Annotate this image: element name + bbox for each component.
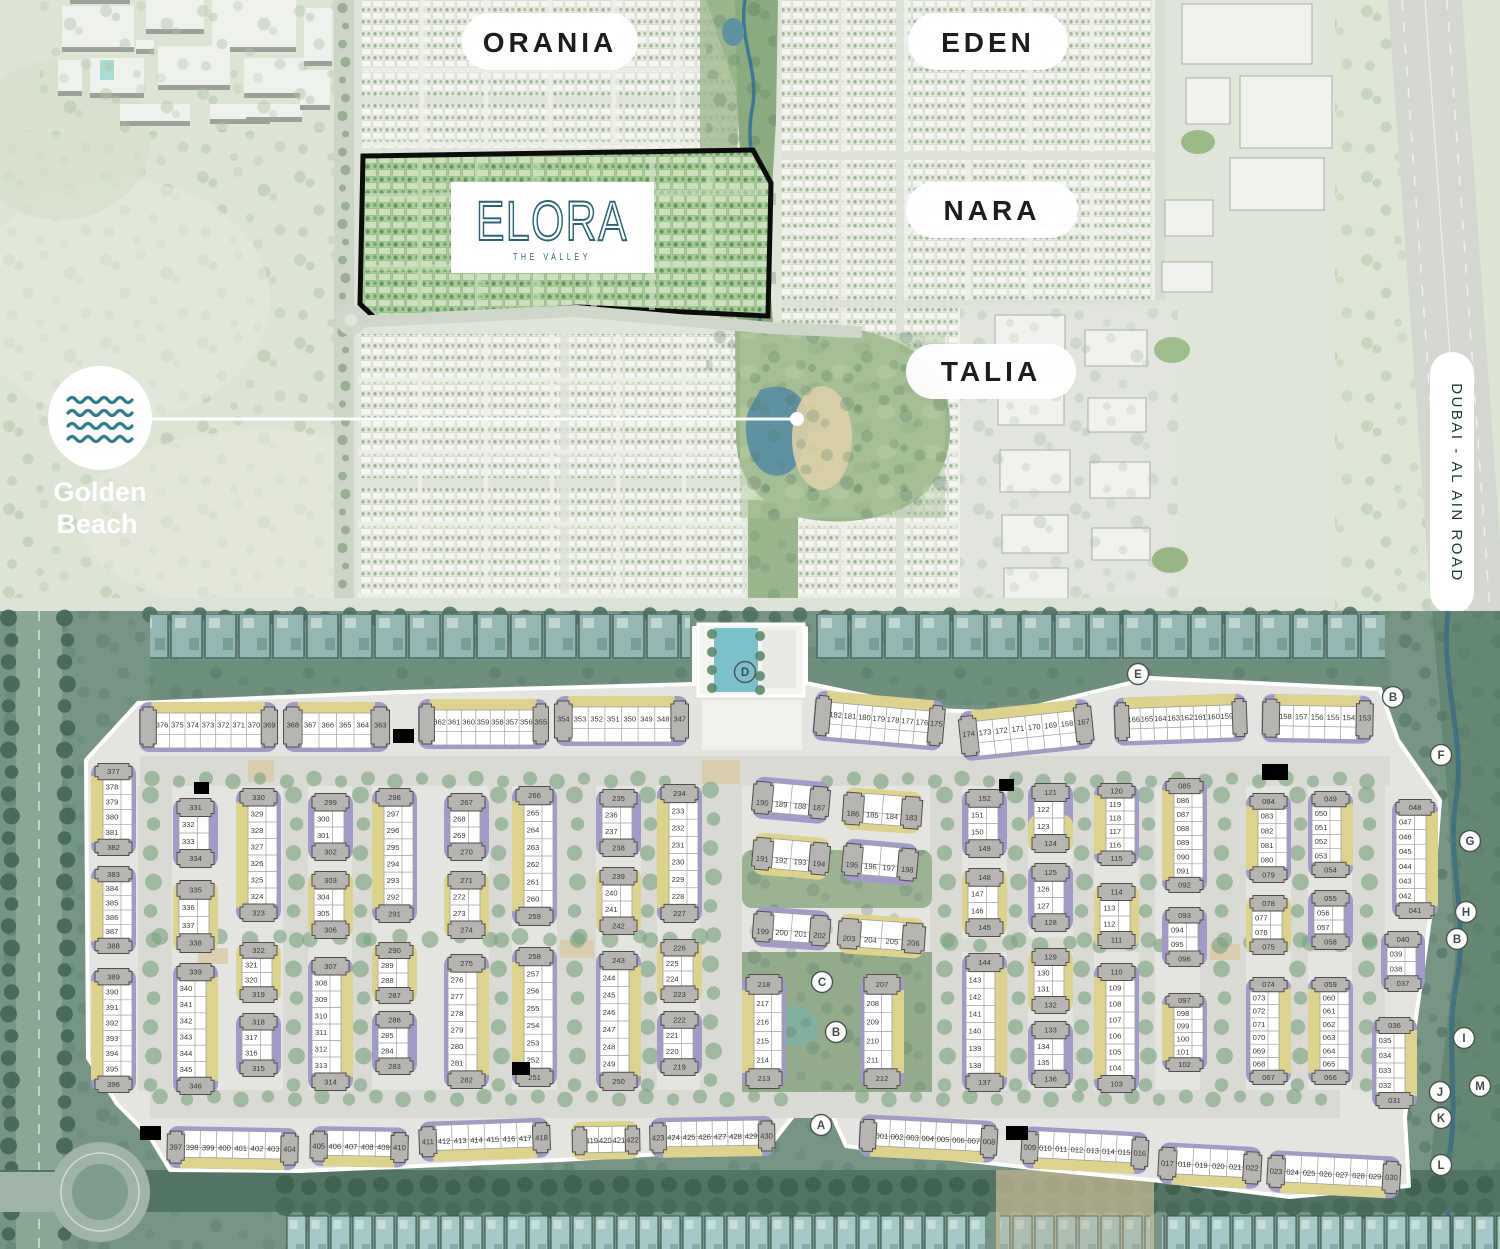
svg-text:327: 327 (251, 842, 264, 851)
svg-text:014: 014 (1102, 1147, 1115, 1157)
svg-text:369: 369 (263, 721, 276, 730)
svg-text:382: 382 (107, 843, 120, 852)
svg-text:238: 238 (612, 843, 625, 852)
svg-text:047: 047 (1399, 818, 1412, 827)
svg-text:I: I (1462, 1033, 1465, 1045)
svg-text:142: 142 (969, 992, 982, 1001)
svg-text:278: 278 (451, 1009, 464, 1018)
svg-text:269: 269 (453, 831, 466, 840)
svg-text:315: 315 (252, 1064, 265, 1073)
svg-text:134: 134 (1037, 1042, 1050, 1051)
svg-text:226: 226 (673, 943, 686, 952)
svg-text:398: 398 (186, 1143, 199, 1152)
svg-text:095: 095 (1171, 940, 1184, 949)
svg-text:165: 165 (1140, 714, 1153, 723)
svg-text:098: 098 (1177, 1009, 1190, 1018)
svg-text:321: 321 (245, 961, 258, 970)
svg-text:361: 361 (448, 718, 461, 727)
svg-text:135: 135 (1037, 1058, 1050, 1067)
svg-text:272: 272 (453, 892, 466, 901)
svg-text:250: 250 (612, 1077, 625, 1086)
svg-text:234: 234 (673, 789, 686, 798)
svg-text:108: 108 (1109, 1000, 1122, 1009)
svg-text:156: 156 (1311, 713, 1324, 722)
svg-text:149: 149 (978, 844, 991, 853)
svg-text:320: 320 (245, 976, 258, 985)
svg-text:010: 010 (1039, 1143, 1052, 1153)
svg-text:191: 191 (755, 854, 768, 864)
svg-text:230: 230 (672, 858, 685, 867)
svg-text:427: 427 (714, 1132, 727, 1141)
svg-text:003: 003 (906, 1133, 919, 1143)
svg-text:243: 243 (612, 956, 625, 965)
svg-text:411: 411 (422, 1137, 434, 1146)
svg-text:069: 069 (1253, 1047, 1266, 1056)
svg-text:004: 004 (921, 1134, 934, 1144)
svg-text:127: 127 (1037, 902, 1050, 911)
svg-text:074: 074 (1262, 980, 1275, 989)
svg-text:138: 138 (969, 1061, 982, 1070)
svg-text:344: 344 (180, 1049, 193, 1058)
svg-text:055: 055 (1324, 894, 1337, 903)
svg-text:027: 027 (1335, 1170, 1348, 1180)
svg-text:125: 125 (1044, 868, 1057, 877)
svg-text:270: 270 (460, 847, 473, 856)
svg-text:029: 029 (1368, 1172, 1381, 1182)
svg-text:173: 173 (978, 727, 992, 737)
svg-text:104: 104 (1109, 1064, 1122, 1073)
svg-text:126: 126 (1037, 885, 1050, 894)
svg-text:403: 403 (267, 1144, 280, 1153)
svg-text:056: 056 (1317, 908, 1330, 917)
svg-text:324: 324 (251, 892, 264, 901)
svg-text:161: 161 (1194, 712, 1207, 721)
svg-text:402: 402 (251, 1144, 264, 1153)
svg-text:232: 232 (672, 823, 685, 832)
svg-text:399: 399 (202, 1143, 215, 1152)
svg-text:100: 100 (1177, 1035, 1190, 1044)
svg-text:286: 286 (388, 1015, 401, 1024)
svg-text:043: 043 (1399, 877, 1412, 886)
svg-text:137: 137 (978, 1078, 991, 1087)
svg-text:G: G (1466, 836, 1475, 848)
svg-text:025: 025 (1302, 1168, 1315, 1178)
svg-text:002: 002 (891, 1132, 904, 1142)
svg-text:394: 394 (106, 1049, 119, 1058)
svg-text:129: 129 (1044, 953, 1057, 962)
svg-text:035: 035 (1379, 1036, 1392, 1045)
svg-text:284: 284 (381, 1046, 394, 1055)
svg-text:339: 339 (189, 968, 202, 977)
svg-text:313: 313 (315, 1061, 328, 1070)
svg-text:058: 058 (1324, 937, 1337, 946)
svg-text:174: 174 (962, 729, 976, 739)
svg-text:259: 259 (528, 912, 541, 921)
svg-text:NARA: NARA (944, 195, 1041, 226)
svg-text:ORANIA: ORANIA (483, 27, 617, 58)
svg-text:038: 038 (1390, 965, 1403, 974)
svg-text:E: E (1134, 669, 1142, 681)
svg-text:107: 107 (1109, 1016, 1122, 1025)
svg-text:132: 132 (1044, 1001, 1057, 1010)
svg-text:077: 077 (1255, 913, 1268, 922)
svg-text:314: 314 (324, 1077, 337, 1086)
svg-text:413: 413 (454, 1136, 467, 1145)
svg-text:373: 373 (202, 721, 215, 730)
svg-text:273: 273 (453, 909, 466, 918)
svg-text:022: 022 (1246, 1163, 1259, 1173)
svg-text:159: 159 (1220, 712, 1233, 721)
svg-text:308: 308 (315, 978, 328, 987)
svg-text:428: 428 (729, 1132, 742, 1141)
svg-text:311: 311 (315, 1028, 327, 1037)
svg-text:404: 404 (283, 1145, 296, 1154)
svg-text:114: 114 (1110, 888, 1122, 897)
svg-text:093: 093 (1178, 911, 1191, 920)
svg-text:352: 352 (590, 715, 603, 724)
svg-text:032: 032 (1379, 1081, 1392, 1090)
svg-text:164: 164 (1154, 714, 1167, 723)
svg-text:275: 275 (460, 959, 473, 968)
svg-text:300: 300 (317, 814, 330, 823)
svg-text:301: 301 (317, 831, 330, 840)
svg-text:426: 426 (698, 1133, 711, 1142)
svg-text:323: 323 (252, 908, 265, 917)
svg-text:310: 310 (315, 1011, 328, 1020)
svg-text:376: 376 (156, 721, 169, 730)
svg-text:009: 009 (1023, 1143, 1036, 1153)
svg-text:124: 124 (1044, 839, 1057, 848)
svg-text:011: 011 (1055, 1144, 1068, 1154)
svg-text:285: 285 (381, 1031, 394, 1040)
svg-text:378: 378 (106, 782, 119, 791)
svg-text:136: 136 (1044, 1075, 1057, 1084)
svg-text:172: 172 (995, 726, 1009, 736)
svg-text:160: 160 (1207, 712, 1220, 721)
svg-text:053: 053 (1315, 851, 1328, 860)
svg-text:397: 397 (169, 1143, 182, 1152)
svg-text:045: 045 (1399, 847, 1412, 856)
svg-text:364: 364 (356, 721, 369, 730)
svg-text:190: 190 (755, 798, 768, 808)
svg-text:307: 307 (324, 962, 337, 971)
svg-text:430: 430 (760, 1131, 773, 1140)
svg-text:221: 221 (666, 1031, 679, 1040)
svg-text:408: 408 (361, 1142, 374, 1151)
svg-text:266: 266 (528, 791, 541, 800)
svg-text:412: 412 (438, 1137, 451, 1146)
svg-text:063: 063 (1323, 1033, 1336, 1042)
svg-text:031: 031 (1388, 1096, 1401, 1105)
svg-text:368: 368 (286, 721, 299, 730)
svg-text:219: 219 (673, 1063, 686, 1072)
svg-text:215: 215 (756, 1037, 769, 1046)
svg-text:199: 199 (756, 927, 769, 937)
svg-text:THE VALLEY: THE VALLEY (513, 252, 591, 263)
svg-text:050: 050 (1315, 809, 1328, 818)
svg-text:298: 298 (388, 793, 401, 802)
svg-text:209: 209 (866, 1018, 879, 1027)
svg-text:356: 356 (520, 718, 533, 727)
svg-text:145: 145 (978, 923, 991, 932)
svg-text:F: F (1437, 750, 1444, 762)
svg-text:071: 071 (1253, 1020, 1266, 1029)
svg-text:155: 155 (1327, 713, 1340, 722)
svg-text:H: H (1462, 907, 1470, 919)
svg-text:396: 396 (107, 1080, 120, 1089)
svg-text:253: 253 (527, 1039, 540, 1048)
svg-text:223: 223 (673, 990, 686, 999)
svg-text:146: 146 (971, 907, 984, 916)
svg-text:418: 418 (535, 1133, 548, 1142)
svg-text:042: 042 (1399, 892, 1412, 901)
svg-text:153: 153 (1358, 713, 1371, 722)
svg-text:119: 119 (1109, 800, 1121, 809)
svg-text:360: 360 (462, 718, 475, 727)
svg-text:229: 229 (672, 875, 685, 884)
svg-text:305: 305 (317, 909, 330, 918)
svg-text:337: 337 (182, 921, 195, 930)
svg-text:400: 400 (218, 1143, 231, 1152)
svg-text:171: 171 (1011, 724, 1025, 734)
svg-text:335: 335 (189, 886, 202, 895)
svg-text:207: 207 (876, 980, 889, 989)
svg-text:175: 175 (930, 719, 943, 729)
svg-text:331: 331 (189, 803, 202, 812)
svg-text:176: 176 (915, 717, 928, 727)
svg-text:365: 365 (339, 721, 352, 730)
svg-text:015: 015 (1118, 1148, 1131, 1158)
svg-text:115: 115 (1110, 854, 1122, 863)
svg-text:345: 345 (180, 1065, 193, 1074)
svg-text:264: 264 (527, 826, 540, 835)
svg-text:041: 041 (1409, 906, 1422, 915)
svg-text:151: 151 (971, 811, 984, 820)
svg-text:023: 023 (1270, 1167, 1283, 1177)
svg-text:180: 180 (858, 712, 871, 722)
svg-text:060: 060 (1323, 994, 1336, 1003)
svg-text:329: 329 (251, 809, 264, 818)
svg-text:036: 036 (1388, 1021, 1401, 1030)
svg-text:007: 007 (967, 1136, 980, 1146)
svg-text:086: 086 (1177, 796, 1190, 805)
svg-text:081: 081 (1261, 841, 1274, 850)
svg-text:283: 283 (388, 1062, 401, 1071)
svg-text:410: 410 (393, 1143, 406, 1152)
svg-text:279: 279 (451, 1025, 464, 1034)
svg-text:122: 122 (1037, 805, 1050, 814)
svg-text:B: B (1453, 934, 1461, 946)
svg-text:276: 276 (451, 976, 464, 985)
svg-text:039: 039 (1390, 950, 1403, 959)
svg-text:097: 097 (1178, 996, 1191, 1005)
svg-text:Golden: Golden (54, 477, 147, 507)
svg-text:355: 355 (534, 718, 547, 727)
svg-text:416: 416 (503, 1134, 516, 1143)
svg-text:372: 372 (217, 721, 230, 730)
svg-text:Beach: Beach (56, 509, 137, 539)
svg-text:390: 390 (106, 988, 119, 997)
svg-text:349: 349 (640, 715, 653, 724)
svg-text:121: 121 (1044, 788, 1057, 797)
svg-text:195: 195 (845, 860, 858, 870)
svg-text:D: D (741, 667, 749, 679)
svg-text:057: 057 (1317, 923, 1330, 932)
svg-text:092: 092 (1178, 881, 1191, 890)
svg-text:293: 293 (387, 876, 400, 885)
svg-text:395: 395 (106, 1065, 119, 1074)
svg-text:012: 012 (1070, 1145, 1083, 1155)
svg-text:212: 212 (876, 1074, 889, 1083)
svg-text:405: 405 (312, 1142, 325, 1151)
svg-text:A: A (817, 1120, 825, 1132)
svg-text:118: 118 (1109, 813, 1121, 822)
svg-text:406: 406 (328, 1142, 341, 1151)
svg-text:318: 318 (252, 1017, 265, 1026)
svg-text:265: 265 (527, 809, 540, 818)
svg-text:200: 200 (775, 928, 788, 938)
svg-text:393: 393 (106, 1034, 119, 1043)
svg-text:094: 094 (1171, 925, 1184, 934)
svg-text:254: 254 (527, 1021, 540, 1030)
svg-text:116: 116 (1109, 840, 1121, 849)
svg-text:006: 006 (952, 1135, 965, 1145)
svg-text:423: 423 (652, 1133, 665, 1142)
svg-text:289: 289 (381, 961, 394, 970)
svg-text:133: 133 (1044, 1026, 1057, 1035)
svg-text:274: 274 (460, 925, 473, 934)
svg-text:054: 054 (1324, 866, 1337, 875)
svg-text:197: 197 (882, 863, 895, 873)
svg-text:261: 261 (527, 878, 540, 887)
svg-text:421: 421 (613, 1136, 626, 1145)
svg-text:117: 117 (1109, 827, 1121, 836)
svg-text:392: 392 (106, 1018, 119, 1027)
svg-text:409: 409 (377, 1143, 390, 1152)
svg-text:341: 341 (180, 1000, 193, 1009)
svg-text:001: 001 (875, 1131, 888, 1141)
svg-text:L: L (1437, 1160, 1444, 1172)
svg-text:B: B (832, 1027, 840, 1039)
svg-text:TALIA: TALIA (941, 356, 1041, 387)
svg-text:026: 026 (1319, 1169, 1332, 1179)
svg-text:044: 044 (1399, 862, 1412, 871)
svg-text:062: 062 (1323, 1020, 1336, 1029)
svg-text:241: 241 (605, 905, 618, 914)
svg-text:102: 102 (1178, 1060, 1191, 1069)
svg-text:048: 048 (1409, 803, 1422, 812)
svg-text:079: 079 (1262, 870, 1275, 879)
svg-text:353: 353 (574, 715, 587, 724)
svg-text:290: 290 (388, 946, 401, 955)
svg-text:379: 379 (106, 798, 119, 807)
svg-text:218: 218 (758, 980, 771, 989)
svg-text:184: 184 (885, 812, 898, 822)
svg-text:429: 429 (745, 1132, 758, 1141)
svg-text:123: 123 (1037, 822, 1050, 831)
svg-text:386: 386 (106, 913, 119, 922)
svg-text:185: 185 (866, 810, 879, 820)
svg-text:271: 271 (460, 876, 473, 885)
svg-text:224: 224 (666, 974, 679, 983)
svg-text:330: 330 (252, 793, 265, 802)
svg-text:222: 222 (673, 1016, 686, 1025)
svg-text:J: J (1437, 1087, 1443, 1099)
svg-text:110: 110 (1110, 968, 1122, 977)
svg-text:281: 281 (451, 1059, 464, 1068)
svg-text:228: 228 (672, 892, 685, 901)
svg-text:131: 131 (1037, 985, 1050, 994)
svg-text:017: 017 (1161, 1159, 1174, 1169)
svg-text:066: 066 (1324, 1073, 1337, 1082)
svg-text:188: 188 (793, 801, 806, 811)
svg-text:415: 415 (486, 1135, 499, 1144)
svg-text:103: 103 (1110, 1080, 1123, 1089)
svg-text:061: 061 (1323, 1007, 1336, 1016)
svg-text:348: 348 (657, 715, 670, 724)
svg-text:333: 333 (182, 837, 195, 846)
svg-text:424: 424 (667, 1133, 680, 1142)
svg-text:244: 244 (603, 974, 616, 983)
svg-text:235: 235 (612, 794, 625, 803)
svg-text:075: 075 (1262, 942, 1275, 951)
svg-text:068: 068 (1253, 1060, 1266, 1069)
svg-text:334: 334 (189, 854, 202, 863)
svg-text:233: 233 (672, 806, 685, 815)
svg-text:028: 028 (1352, 1171, 1365, 1181)
svg-text:425: 425 (683, 1133, 696, 1142)
svg-text:380: 380 (106, 813, 119, 822)
svg-text:168: 168 (1060, 719, 1074, 729)
svg-text:K: K (1437, 1113, 1446, 1125)
svg-text:130: 130 (1037, 969, 1050, 978)
svg-text:347: 347 (673, 715, 686, 724)
svg-text:141: 141 (969, 1010, 982, 1019)
svg-text:034: 034 (1379, 1051, 1392, 1060)
svg-text:046: 046 (1399, 833, 1412, 842)
svg-text:150: 150 (971, 828, 984, 837)
svg-text:363: 363 (374, 721, 387, 730)
svg-text:085: 085 (1178, 782, 1191, 791)
svg-text:236: 236 (605, 810, 618, 819)
svg-text:319: 319 (252, 990, 265, 999)
svg-text:154: 154 (1342, 713, 1355, 722)
svg-text:277: 277 (451, 992, 464, 1001)
svg-text:417: 417 (519, 1134, 532, 1143)
svg-text:306: 306 (324, 925, 337, 934)
svg-text:099: 099 (1177, 1022, 1190, 1031)
svg-text:401: 401 (234, 1144, 247, 1153)
svg-text:167: 167 (1077, 717, 1091, 727)
svg-text:288: 288 (381, 976, 394, 985)
svg-text:340: 340 (180, 984, 193, 993)
svg-text:240: 240 (605, 888, 618, 897)
svg-text:317: 317 (245, 1033, 258, 1042)
svg-text:083: 083 (1261, 812, 1274, 821)
svg-text:112: 112 (1103, 920, 1115, 929)
svg-text:020: 020 (1212, 1161, 1225, 1171)
svg-text:181: 181 (843, 711, 856, 721)
svg-text:359: 359 (477, 718, 490, 727)
svg-text:128: 128 (1044, 918, 1057, 927)
svg-text:422: 422 (626, 1135, 639, 1144)
svg-text:204: 204 (864, 935, 877, 945)
svg-text:312: 312 (315, 1044, 328, 1053)
svg-text:169: 169 (1044, 720, 1058, 730)
svg-text:237: 237 (605, 827, 618, 836)
svg-text:299: 299 (324, 798, 337, 807)
svg-text:070: 070 (1253, 1033, 1266, 1042)
